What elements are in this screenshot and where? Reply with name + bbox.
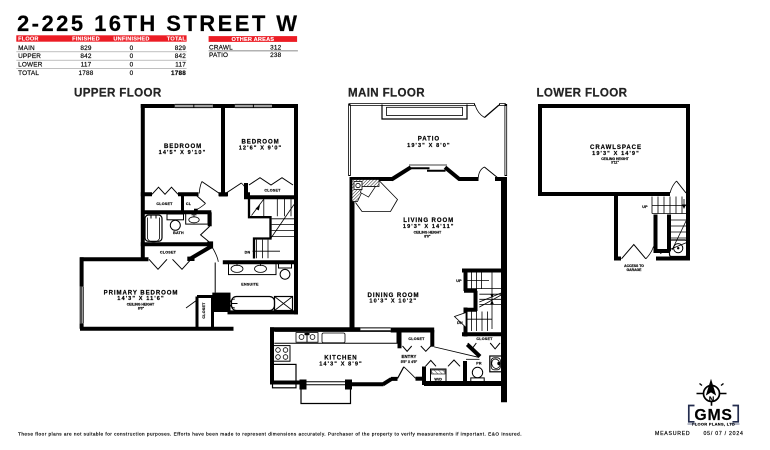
svg-text:14'3" X 8'9": 14'3" X 8'9" (319, 362, 363, 368)
svg-text:19'3" X 14'11": 19'3" X 14'11" (403, 224, 455, 230)
svg-text:TOTAL: TOTAL (167, 37, 187, 43)
svg-text:LOWER FLOOR: LOWER FLOOR (537, 87, 628, 100)
svg-text:MEASURED 05/ 07 / 2024: MEASURED 05/ 07 / 2024 (655, 431, 744, 437)
svg-text:10'3" X 10'2": 10'3" X 10'2" (369, 299, 417, 305)
svg-text:These floor plans are not suit: These floor plans are not suitable for c… (18, 432, 522, 437)
svg-text:KITCHEN: KITCHEN (324, 355, 357, 362)
svg-text:FLOOR: FLOOR (18, 37, 39, 43)
svg-text:DN: DN (245, 251, 251, 255)
svg-text:PATIO: PATIO (209, 52, 228, 59)
svg-text:GARAGE: GARAGE (627, 268, 643, 272)
svg-text:FINISHED: FINISHED (72, 37, 100, 43)
svg-text:14'3" X 11'6": 14'3" X 11'6" (117, 296, 164, 302)
svg-text:CLOSET: CLOSET (202, 302, 206, 319)
svg-text:BATH: BATH (173, 231, 184, 235)
svg-text:842: 842 (175, 53, 187, 60)
svg-text:CL: CL (186, 202, 192, 206)
svg-text:TOTAL: TOTAL (18, 70, 39, 77)
svg-text:238: 238 (270, 52, 282, 59)
svg-text:CLOSET: CLOSET (156, 202, 173, 206)
svg-text:5'5" X 4'5": 5'5" X 4'5" (401, 360, 418, 364)
svg-text:842: 842 (80, 53, 92, 60)
svg-text:0: 0 (130, 45, 134, 52)
svg-text:DN: DN (457, 321, 463, 325)
svg-text:CLOSET: CLOSET (160, 250, 177, 254)
svg-text:2-225 16TH STREET W: 2-225 16TH STREET W (17, 11, 300, 36)
svg-text:FLOOR PLANS, LTD: FLOOR PLANS, LTD (692, 422, 735, 427)
svg-text:14'5" X 9'10": 14'5" X 9'10" (159, 150, 207, 156)
svg-text:UPPER: UPPER (18, 53, 41, 60)
svg-text:ENTRY: ENTRY (401, 354, 416, 359)
svg-text:ENSUITE: ENSUITE (241, 283, 259, 287)
svg-text:829: 829 (80, 45, 92, 52)
svg-text:UPPER FLOOR: UPPER FLOOR (74, 87, 162, 100)
svg-text:0: 0 (130, 62, 134, 69)
svg-text:312: 312 (270, 44, 282, 51)
svg-text:8'0": 8'0" (424, 234, 431, 238)
svg-text:PR: PR (476, 361, 482, 365)
svg-text:117: 117 (81, 62, 92, 69)
svg-text:0: 0 (130, 70, 134, 77)
svg-text:LOWER: LOWER (18, 62, 43, 69)
svg-text:PATIO: PATIO (418, 136, 440, 143)
svg-text:UNFINISHED: UNFINISHED (113, 37, 149, 43)
svg-text:12'6" X 9'0": 12'6" X 9'0" (239, 146, 283, 152)
svg-text:8'0": 8'0" (138, 306, 145, 310)
svg-text:MAIN: MAIN (18, 45, 35, 52)
svg-text:3'11": 3'11" (611, 160, 619, 164)
svg-text:CLOSET: CLOSET (408, 337, 425, 341)
svg-text:MAIN FLOOR: MAIN FLOOR (348, 87, 425, 100)
svg-text:19'3" X 8'0": 19'3" X 8'0" (407, 143, 451, 149)
svg-text:CLOSET: CLOSET (264, 189, 281, 193)
svg-text:1788: 1788 (171, 70, 186, 77)
svg-text:829: 829 (175, 45, 187, 52)
svg-text:CLOSET: CLOSET (476, 337, 493, 341)
svg-text:1788: 1788 (78, 70, 93, 77)
svg-text:OTHER AREAS: OTHER AREAS (232, 37, 275, 43)
svg-text:0: 0 (130, 53, 134, 60)
svg-text:CRAWL: CRAWL (209, 44, 233, 51)
svg-text:UP: UP (456, 279, 462, 283)
svg-text:117: 117 (175, 62, 186, 69)
svg-text:N: N (709, 394, 714, 403)
svg-text:19'3" X 14'9": 19'3" X 14'9" (592, 151, 640, 157)
svg-text:W/D: W/D (434, 378, 442, 382)
svg-text:UP: UP (642, 205, 648, 209)
